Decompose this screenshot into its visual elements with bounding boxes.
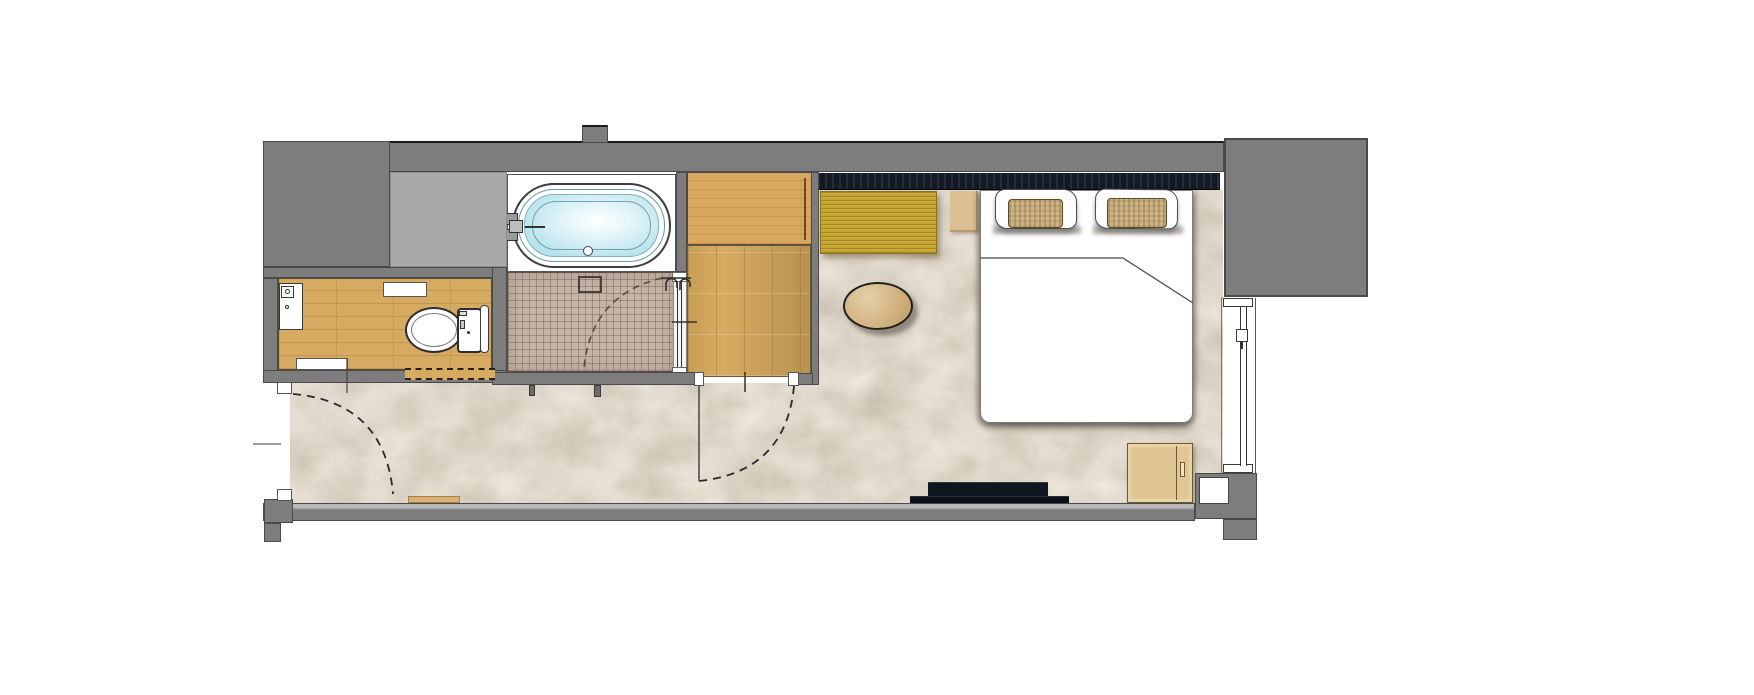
line-overlay	[0, 0, 1754, 695]
entry-door-swing-arc	[293, 394, 393, 494]
shower-mixer-icon	[661, 278, 691, 291]
floor-plan	[0, 0, 1754, 695]
shower-door-swing-arc	[584, 278, 662, 368]
dressing-door-swing-arc	[699, 386, 794, 481]
duvet-fold-line	[980, 258, 1193, 303]
